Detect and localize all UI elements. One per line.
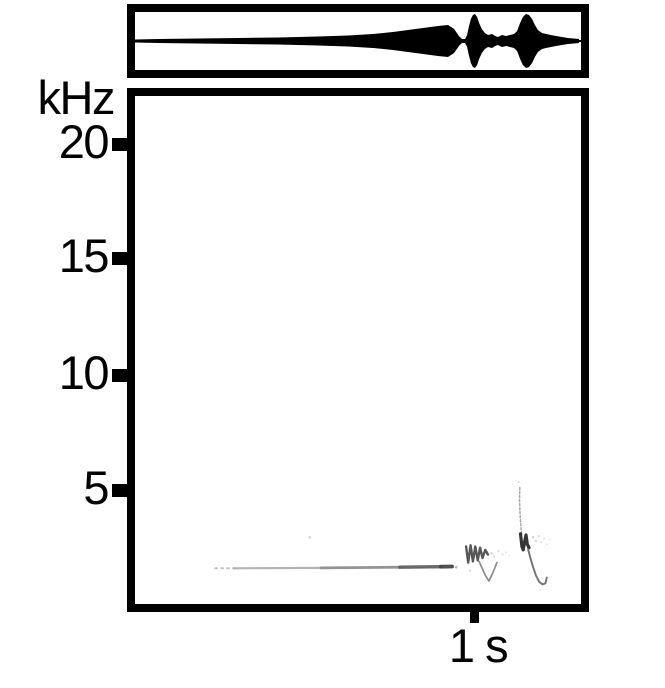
- spectrogram-speckle: [490, 552, 492, 554]
- spectrogram-speckle: [546, 543, 548, 545]
- spectrogram-speckle: [539, 589, 541, 591]
- spectrogram-speckle: [518, 481, 520, 483]
- spectrogram-svg: [135, 96, 581, 604]
- note2-core: [521, 534, 530, 550]
- spectrogram-speckle: [497, 550, 499, 552]
- spectrogram-speckle: [455, 566, 458, 569]
- trill-mid: [321, 567, 400, 568]
- note1-wavy: [466, 545, 488, 562]
- waveform-baseline: [135, 40, 581, 42]
- trill-strong: [400, 567, 441, 568]
- spectrogram-speckle: [501, 554, 503, 556]
- y-axis-tick-5: [112, 484, 127, 497]
- spectrogram-speckle: [543, 537, 545, 539]
- note1-descending-v: [479, 561, 497, 581]
- spectrogram-speckle: [532, 536, 534, 538]
- spectrogram-speckle: [538, 535, 540, 537]
- spectrogram-panel: [127, 88, 589, 612]
- y-axis-tick-20: [112, 138, 127, 151]
- note2-spike: [520, 488, 522, 534]
- spectrogram-speckle: [540, 541, 542, 543]
- spectrogram-speckle: [493, 556, 495, 558]
- x-axis-tick-label: 1 s: [408, 622, 548, 669]
- figure-container: kHz 20 15 10 5 1 s: [0, 0, 665, 688]
- oscillogram-panel: [127, 4, 589, 78]
- y-axis-tick-15: [112, 252, 127, 265]
- spectrogram-speckle: [535, 540, 537, 542]
- y-axis-tick-label-10: 10: [18, 349, 108, 396]
- y-axis-tick-label-20: 20: [18, 118, 108, 165]
- y-axis-unit-label: kHz: [18, 74, 114, 121]
- y-axis-tick-10: [112, 369, 127, 382]
- spectrogram-speckle: [549, 539, 551, 541]
- waveform-svg: [135, 12, 581, 70]
- spectrogram-speckle: [469, 570, 471, 572]
- spectrogram-speckle: [508, 555, 510, 557]
- y-axis-tick-label-15: 15: [18, 232, 108, 279]
- spectrogram-speckle: [505, 551, 507, 553]
- y-axis-tick-label-5: 5: [18, 464, 108, 511]
- note2-tail: [528, 549, 547, 585]
- spectrogram-speckle: [308, 536, 311, 539]
